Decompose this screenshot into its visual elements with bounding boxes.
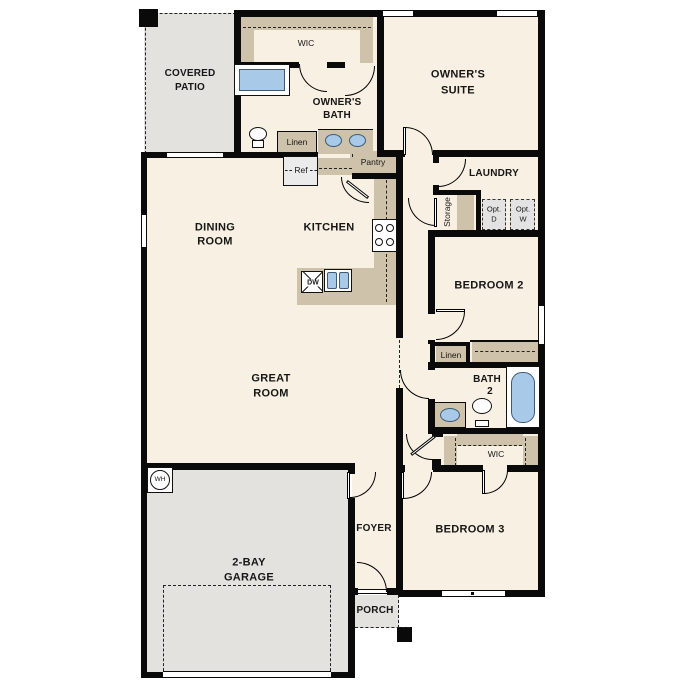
wic2-rod <box>525 438 526 466</box>
wall <box>428 399 435 430</box>
window <box>141 215 147 247</box>
closet-rod <box>475 351 535 352</box>
wic2-rod <box>458 445 522 446</box>
burner <box>386 238 394 246</box>
window <box>167 152 223 158</box>
dishwasher-label: DW <box>306 280 320 287</box>
wall <box>327 62 345 68</box>
room-label-kitchen: KITCHEN <box>304 223 355 234</box>
closet-shelf <box>360 17 373 63</box>
bathtub <box>511 372 535 423</box>
wall <box>396 388 403 472</box>
shower-pan <box>239 69 285 91</box>
door-leaf <box>401 472 404 499</box>
closet-rod <box>243 27 371 28</box>
counter-dash <box>386 180 387 220</box>
toilet-tank <box>252 140 264 148</box>
wall <box>507 465 545 472</box>
closet-header <box>470 340 538 342</box>
toilet <box>249 127 267 141</box>
room-label-garage: 2-BAY <box>232 558 266 569</box>
kitchen-counter-top <box>317 158 353 175</box>
wall <box>428 428 545 434</box>
closet-shelf <box>241 17 254 63</box>
room-label-dining: ROOM <box>197 237 232 248</box>
room-label-covered-patio: PATIO <box>175 83 205 93</box>
label-linen-1: Linen <box>287 138 308 147</box>
door-leaf <box>436 309 465 312</box>
door-leaf <box>403 127 406 155</box>
room-label-porch: PORCH <box>356 606 393 616</box>
burner <box>375 238 383 246</box>
sink <box>325 134 342 147</box>
room-label-owners-bath: BATH <box>323 111 351 121</box>
dishwasher: DW <box>301 271 323 293</box>
ref-dash <box>285 170 292 171</box>
door-leaf <box>482 470 485 494</box>
wall <box>141 463 147 678</box>
room-label-wic2: WIC <box>488 450 505 459</box>
counter-dash <box>319 168 352 169</box>
wall <box>348 498 355 678</box>
label-water-heater: WH <box>155 477 166 484</box>
porch-pillar <box>397 627 412 642</box>
room-label-bath2: BATH <box>473 375 501 385</box>
label-opt-washer: W <box>519 215 526 223</box>
sink-basin <box>327 272 337 289</box>
wall <box>141 152 147 466</box>
wall <box>428 230 545 237</box>
room-label-garage: GARAGE <box>224 573 274 584</box>
garage-apron <box>163 585 331 671</box>
window <box>497 10 537 17</box>
toilet <box>472 398 492 414</box>
room-label-bedroom2: BEDROOM 2 <box>454 281 523 292</box>
wall <box>430 342 470 346</box>
window <box>383 10 413 17</box>
porch-boundary <box>398 595 399 628</box>
patio-post <box>139 9 158 27</box>
bedroom2-closet <box>472 342 538 362</box>
garage-door <box>163 671 331 678</box>
door-leaf <box>434 198 437 227</box>
wall <box>387 588 403 595</box>
label-linen-2: Linen <box>441 351 462 360</box>
counter-dash <box>386 254 387 302</box>
sink <box>440 408 460 422</box>
sink <box>349 134 366 147</box>
room-label-great-room: GREAT <box>251 374 290 385</box>
cased-opening <box>399 340 400 388</box>
wall <box>538 10 545 597</box>
wic2-rod <box>455 438 456 466</box>
wall <box>433 150 545 157</box>
porch-boundary <box>355 627 410 628</box>
burner <box>386 224 394 232</box>
label-opt-washer: Opt. <box>516 205 530 213</box>
label-pantry: Pantry <box>361 158 386 167</box>
wall <box>433 465 483 472</box>
room-label-owners-suite: OWNER'S <box>431 70 485 81</box>
wall <box>428 237 435 314</box>
toilet-tank <box>475 420 489 427</box>
room-label-owners-wic: WIC <box>298 39 315 48</box>
wall <box>396 150 403 338</box>
room-label-bath2: 2 <box>487 387 493 397</box>
wall <box>433 190 481 195</box>
closet-shelf <box>241 17 373 30</box>
wall <box>428 362 435 370</box>
ref-dash <box>310 170 317 171</box>
window-mullion <box>471 592 474 595</box>
door-leaf <box>347 472 350 499</box>
storage-shelf <box>457 192 474 232</box>
room-label-dining: DINING <box>195 223 235 234</box>
label-ref: Ref <box>294 166 307 175</box>
room-label-owners-suite: SUITE <box>441 86 475 97</box>
room-label-great-room: ROOM <box>253 389 288 400</box>
patio-boundary <box>145 13 236 14</box>
wall <box>377 10 384 157</box>
room-label-covered-patio: COVERED <box>165 69 216 79</box>
room-label-bedroom3: BEDROOM 3 <box>435 525 504 536</box>
floor-plan: DW COVERED PATIO WIC OWNER'S BATH OWNER'… <box>0 0 687 687</box>
room-label-storage: Storage <box>443 197 452 227</box>
room-label-laundry: LAUNDRY <box>469 169 519 179</box>
label-opt-dryer: Opt. <box>487 205 501 213</box>
room-label-foyer: FOYER <box>356 524 391 534</box>
burner <box>375 224 383 232</box>
room-label-owners-bath: OWNER'S <box>313 98 362 108</box>
wall <box>396 465 405 472</box>
window <box>538 306 545 344</box>
label-opt-dryer: D <box>491 215 496 223</box>
sink-basin <box>339 272 349 289</box>
patio-boundary <box>145 13 146 154</box>
